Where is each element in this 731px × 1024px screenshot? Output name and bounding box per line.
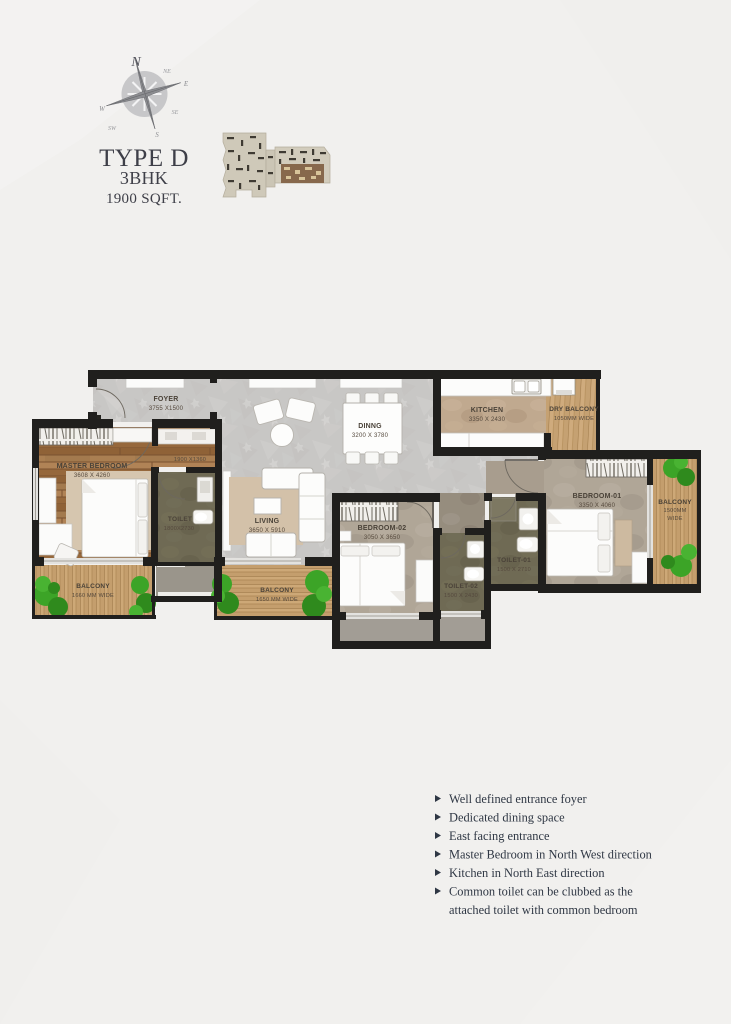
svg-text:1800X2730: 1800X2730	[164, 526, 194, 532]
svg-text:SW: SW	[108, 126, 117, 132]
svg-text:1650 MM WIDE: 1650 MM WIDE	[256, 597, 298, 603]
svg-text:S: S	[155, 131, 159, 139]
svg-text:DINNG: DINNG	[358, 423, 382, 430]
svg-text:Well defined entrance foyer: Well defined entrance foyer	[449, 792, 588, 806]
svg-text:KITCHEN: KITCHEN	[471, 407, 504, 414]
svg-text:BALCONY: BALCONY	[260, 587, 294, 594]
svg-text:1050MM WIDE: 1050MM WIDE	[554, 416, 594, 422]
svg-text:1900 SQFT.: 1900 SQFT.	[106, 191, 182, 207]
svg-text:E: E	[183, 80, 189, 88]
svg-text:1900 X1360: 1900 X1360	[174, 457, 206, 463]
svg-text:Kitchen in North East directio: Kitchen in North East direction	[449, 866, 605, 880]
svg-text:TOILET-01: TOILET-01	[497, 557, 531, 564]
svg-text:Common toilet can be clubbed a: Common toilet can be clubbed as the	[449, 885, 633, 899]
svg-text:3050 X 3650: 3050 X 3650	[364, 535, 401, 541]
svg-text:1500 X 2710: 1500 X 2710	[497, 567, 531, 573]
svg-text:1500 X 2430: 1500 X 2430	[444, 593, 478, 599]
svg-text:3608 X 4260: 3608 X 4260	[74, 473, 111, 479]
svg-text:BALCONY: BALCONY	[658, 499, 692, 506]
svg-text:TOILET: TOILET	[168, 516, 192, 523]
svg-text:BEDROOM-02: BEDROOM-02	[358, 525, 407, 532]
svg-text:East facing entrance: East facing entrance	[449, 829, 550, 843]
svg-text:3755 X1500: 3755 X1500	[149, 406, 184, 412]
svg-text:BALCONY: BALCONY	[76, 583, 110, 590]
svg-text:3650 X 5910: 3650 X 5910	[249, 528, 286, 534]
svg-text:3200 X 3780: 3200 X 3780	[352, 433, 389, 439]
svg-text:TOILET-02: TOILET-02	[444, 583, 478, 590]
svg-text:WIDE: WIDE	[667, 516, 682, 522]
svg-text:N: N	[130, 55, 141, 70]
svg-text:3350 X 4060: 3350 X 4060	[579, 503, 616, 509]
svg-text:FOYER: FOYER	[153, 396, 178, 403]
svg-text:3BHK: 3BHK	[120, 168, 168, 188]
svg-text:LIVING: LIVING	[255, 518, 280, 525]
svg-text:BEDROOM-01: BEDROOM-01	[573, 493, 622, 500]
svg-text:NE: NE	[162, 69, 171, 75]
svg-text:attached toilet with common be: attached toilet with common bedroom	[449, 903, 638, 917]
svg-text:MASTER BEDROOM: MASTER BEDROOM	[57, 463, 128, 470]
svg-text:Master Bedroom in North West d: Master Bedroom in North West direction	[449, 848, 652, 862]
svg-text:DRY BALCONY: DRY BALCONY	[549, 406, 599, 413]
svg-text:1660 MM WIDE: 1660 MM WIDE	[72, 593, 114, 599]
svg-text:1500MM: 1500MM	[664, 508, 687, 514]
svg-text:SE: SE	[172, 110, 179, 116]
svg-text:Dedicated dining space: Dedicated dining space	[449, 811, 565, 825]
svg-text:3350 X 2430: 3350 X 2430	[469, 417, 506, 423]
